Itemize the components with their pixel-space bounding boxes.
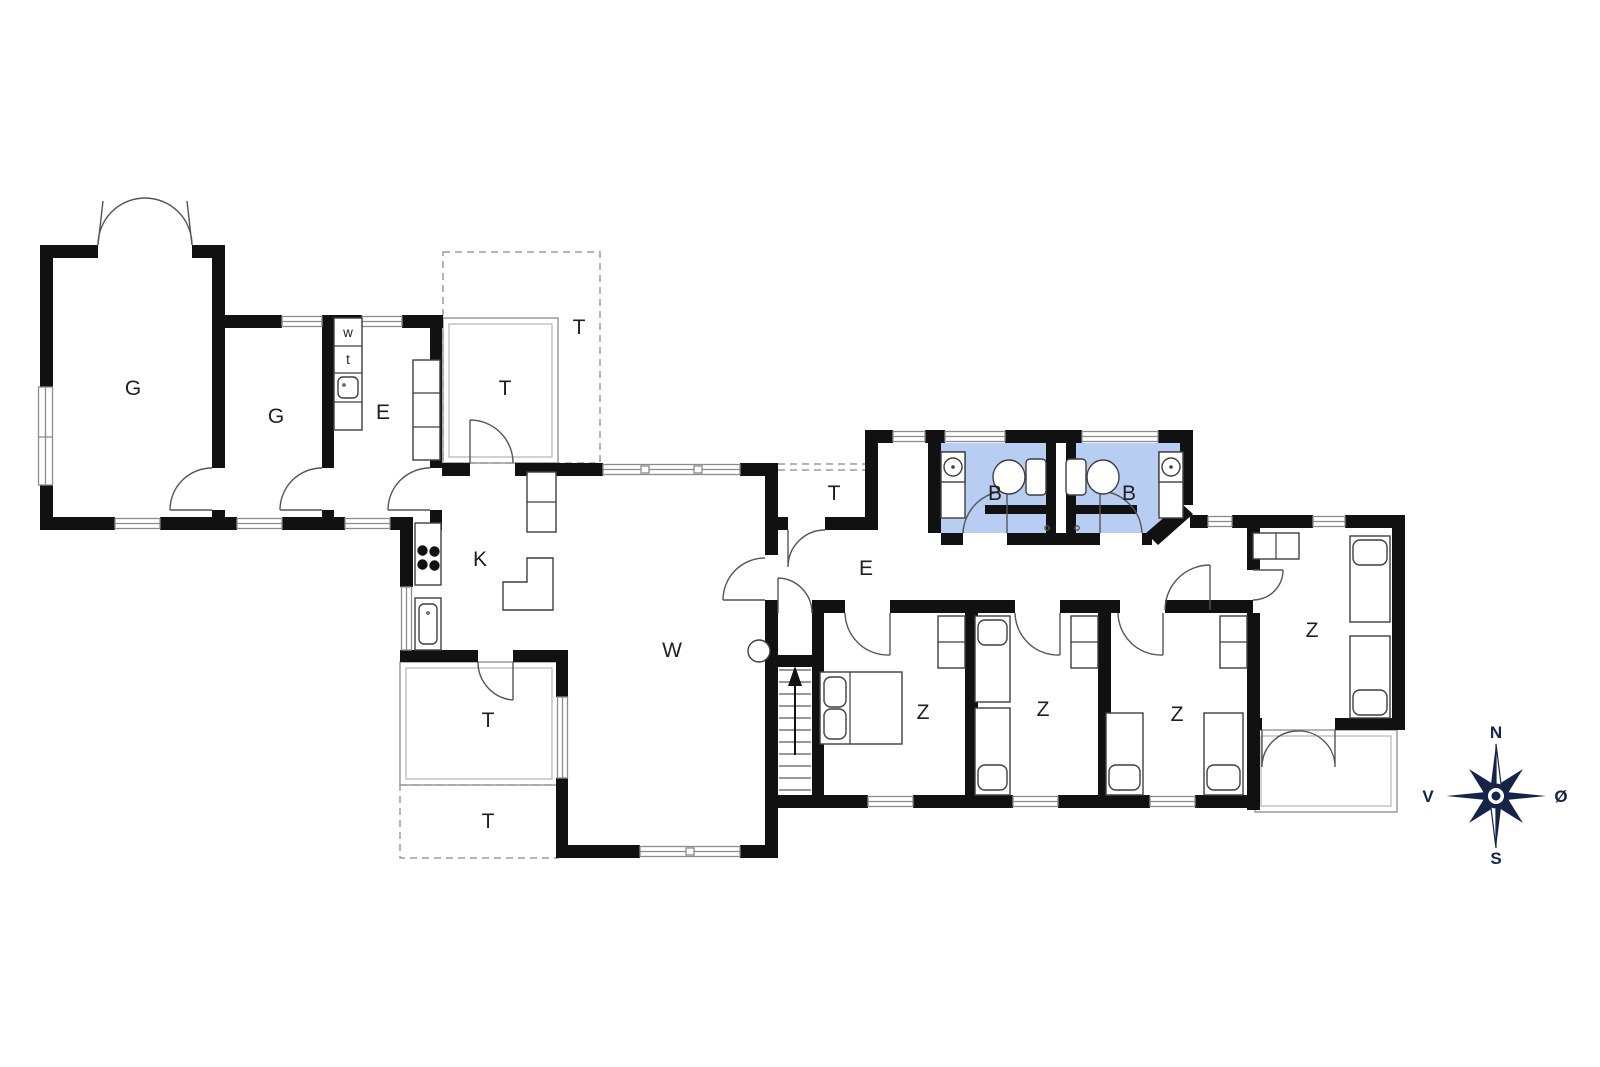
shelving [413, 360, 440, 460]
room-label-z-east: Z [1306, 619, 1319, 642]
room-label-b-left: B [988, 482, 1002, 505]
terrace-open-top [443, 252, 600, 463]
pillow [978, 765, 1007, 790]
wall-segments [40, 245, 1405, 858]
room-label-e-hall: E [859, 557, 873, 580]
kitchen-sink [419, 604, 437, 644]
pillow [824, 709, 846, 739]
door-bedroom-2 [1015, 613, 1060, 655]
pillow [1207, 765, 1240, 790]
door [170, 468, 212, 510]
door-living-hall [723, 558, 765, 600]
room-label-g-large: G [125, 377, 141, 400]
compass-label-west: V [1422, 787, 1434, 806]
kitchen-island [503, 558, 553, 610]
room-label-z-3: Z [1171, 703, 1184, 726]
room-label-e-utility: E [376, 401, 390, 424]
stairs-up-arrow [788, 666, 802, 686]
door-bedroom-east [1253, 570, 1283, 600]
terrace-sw-upper-inner [406, 668, 552, 779]
toilet-tank [1066, 459, 1086, 495]
round-table [748, 640, 770, 662]
room-label-t-sw-lower: T [482, 810, 495, 833]
door-stairs [778, 578, 812, 613]
door-terrace-to-hall [788, 530, 825, 567]
door-bedroom-3 [1118, 613, 1163, 655]
room-label-g-small: G [268, 405, 284, 428]
floorplan-canvas: G G E T T K W T E B B Z Z Z Z T T w t N … [0, 0, 1600, 1067]
room-label-z-1: Z [917, 701, 930, 724]
pillow [824, 677, 846, 707]
compass-center-dot [1492, 792, 1501, 801]
pillow [978, 620, 1007, 645]
floorplan-svg: G G E T T K W T E B B Z Z Z Z T T w t N … [0, 0, 1600, 1067]
room-label-b-right: B [1122, 482, 1136, 505]
compass-rose: N S V Ø [1422, 723, 1567, 868]
compass-label-east: Ø [1554, 787, 1567, 806]
bathroom-fills [941, 443, 1180, 533]
burner [429, 560, 439, 570]
utility-sink [338, 377, 358, 398]
room-label-k-kitchen: K [473, 548, 487, 571]
room-label-w-living: W [662, 639, 682, 662]
stairs [779, 666, 811, 790]
double-door-garage [98, 198, 192, 245]
walls [40, 245, 1405, 858]
room-label-t-open: T [573, 316, 586, 339]
room-label-z-2: Z [1037, 698, 1050, 721]
toilet-bowl [1087, 460, 1119, 494]
compass-label-south: S [1490, 849, 1501, 868]
pillow [1109, 765, 1140, 790]
compass-label-north: N [1490, 723, 1502, 742]
room-label-t-porch: T [499, 377, 512, 400]
room-label-t-sw-upper: T [482, 709, 495, 732]
label-dryer: t [346, 352, 350, 367]
terrace-sw-lower [400, 785, 558, 858]
terrace-sw-upper-outer [400, 662, 558, 785]
burner [417, 559, 427, 569]
windows [39, 317, 1346, 857]
pillow [1353, 690, 1387, 715]
door-bedroom-1 [845, 613, 890, 655]
room-label-t-small: T [828, 482, 841, 505]
burner [417, 545, 427, 555]
toilet-tank [1026, 459, 1046, 495]
door [388, 468, 430, 510]
door [280, 468, 322, 510]
burner [429, 546, 439, 556]
label-washer: w [342, 325, 353, 340]
pillow [1353, 540, 1387, 565]
terrace-east-inner [1261, 736, 1391, 806]
